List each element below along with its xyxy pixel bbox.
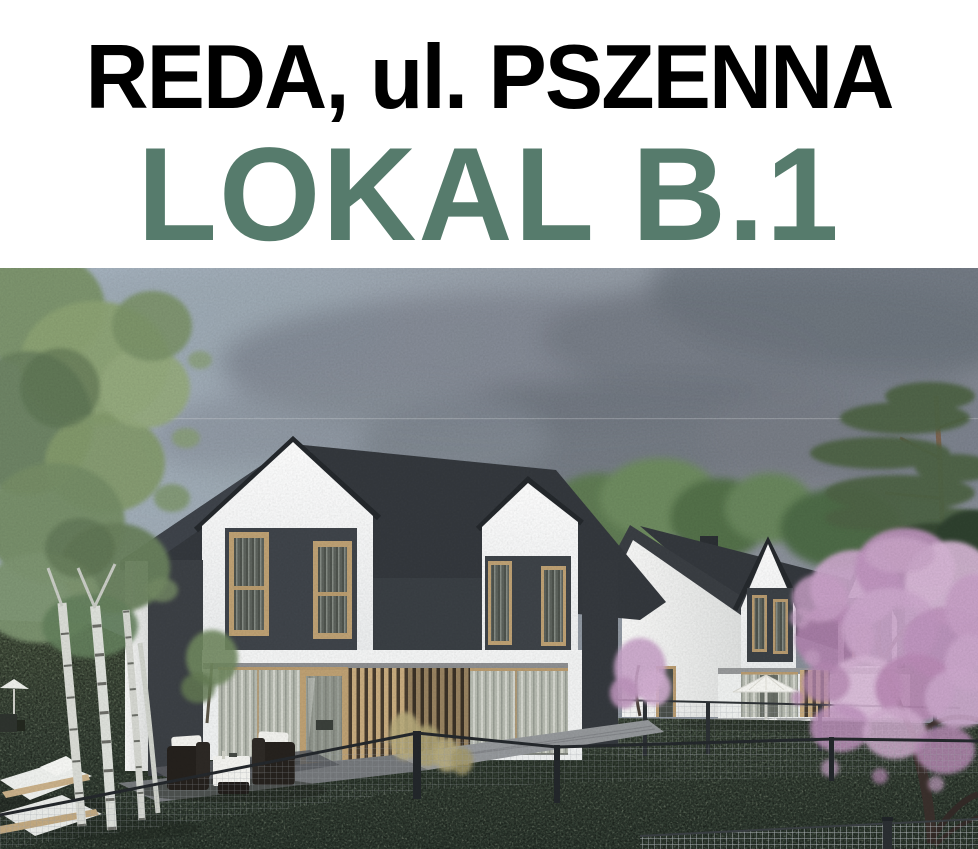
header: REDA, ul. PSZENNA LOKAL B.1	[0, 0, 978, 268]
render-image	[0, 268, 978, 849]
unit-title: LOKAL B.1	[10, 129, 968, 262]
location-title: REDA, ul. PSZENNA	[20, 32, 959, 123]
architectural-render	[0, 268, 978, 849]
property-flyer: REDA, ul. PSZENNA LOKAL B.1	[0, 0, 978, 849]
photo-grain	[0, 268, 978, 849]
